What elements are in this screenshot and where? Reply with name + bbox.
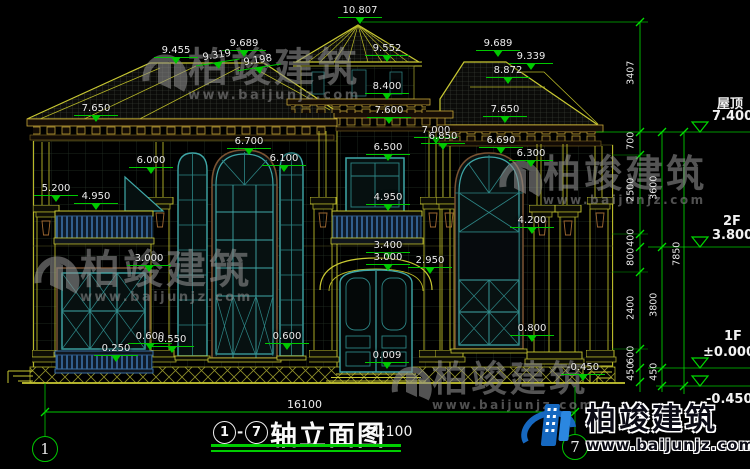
logo-brand-text: 柏竣建筑 <box>586 404 750 436</box>
brand-logo: 柏竣建筑 www.baijunjz.com <box>516 396 750 462</box>
chain-dim: 700 <box>626 119 636 163</box>
title-axis-from: 1 <box>213 421 236 444</box>
f1-level-label: 1F <box>724 329 742 344</box>
chain-dim: 800 <box>626 235 636 279</box>
chain-dim: 3600 <box>649 166 659 210</box>
dim-label: 6.500 <box>366 142 410 155</box>
dim-label: 3.000 <box>366 252 410 265</box>
dim-label: 7.650 <box>74 103 118 116</box>
dim-label: 4.200 <box>510 215 554 228</box>
dim-label: 4.950 <box>366 192 410 205</box>
left-cornice <box>27 119 337 140</box>
dim-label: 9.689 <box>476 38 520 51</box>
chain-dim: 2400 <box>626 286 636 330</box>
dim-label: 7.600 <box>367 105 411 118</box>
dim-label: 3.000 <box>127 253 171 266</box>
title-underline-thin <box>211 450 401 452</box>
axis-bubble-1: 1 <box>32 436 58 462</box>
chain-dim: 2500 <box>626 168 636 212</box>
dim-label: 6.100 <box>262 153 306 166</box>
drawing-title: 轴立面图 <box>270 414 386 453</box>
title-underline-thick <box>211 444 401 447</box>
dim-label: 0.250 <box>94 343 138 356</box>
cad-elevation-screen: 柏竣建筑 www.baijunjz.com 柏竣建筑 www.baijunjz.… <box>0 0 750 469</box>
chain-dim: 3407 <box>626 51 636 95</box>
dim-label: 8.872 <box>486 65 530 78</box>
narrow-arch-window-left <box>175 153 210 360</box>
dim-label: 4.950 <box>74 191 118 204</box>
left-balcony <box>54 211 154 244</box>
chain-dim: 450 <box>649 350 659 394</box>
dim-label: 0.550 <box>150 334 194 347</box>
dim-label: 7.650 <box>483 104 527 117</box>
dim-label: 0.800 <box>510 323 554 336</box>
narrow-arch-window-right <box>277 153 306 360</box>
dim-label: 2.950 <box>408 255 452 268</box>
overall-width-dim: 16100 <box>287 398 322 411</box>
dim-label: 10.807 <box>338 5 382 18</box>
roof-level-value: 7.400 <box>712 109 750 124</box>
dim-label: 0.600 <box>265 331 309 344</box>
dim-label: 9.552 <box>365 43 409 56</box>
dim-label: 6.690 <box>479 135 523 148</box>
dim-label: 6.000 <box>129 155 173 168</box>
chain-dim: 7850 <box>672 232 682 276</box>
dim-label: 6.700 <box>227 136 271 149</box>
f2-level-label: 2F <box>723 214 741 229</box>
dim-label: 9.339 <box>509 51 553 64</box>
brand-logo-icon <box>516 396 582 462</box>
title-separator: - <box>237 423 243 441</box>
dim-label: 6.300 <box>509 148 553 161</box>
dim-label: -0.450 <box>561 362 605 375</box>
dim-label: 6.850 <box>421 131 465 144</box>
chain-dim: 450 <box>626 350 636 394</box>
dim-label: 0.009 <box>365 350 409 363</box>
logo-url-text: www.baijunjz.com <box>586 436 750 454</box>
f2-level-value: 3.800 <box>712 228 750 243</box>
title-axis-to: 7 <box>245 421 268 444</box>
f1-level-value: ±0.000 <box>703 345 750 360</box>
drawing-scale: 1:100 <box>372 424 412 440</box>
chain-dim: 3800 <box>649 283 659 327</box>
dim-label: 8.400 <box>365 81 409 94</box>
dim-label: 9.455 <box>154 45 198 58</box>
dim-label: 5.200 <box>34 183 78 196</box>
